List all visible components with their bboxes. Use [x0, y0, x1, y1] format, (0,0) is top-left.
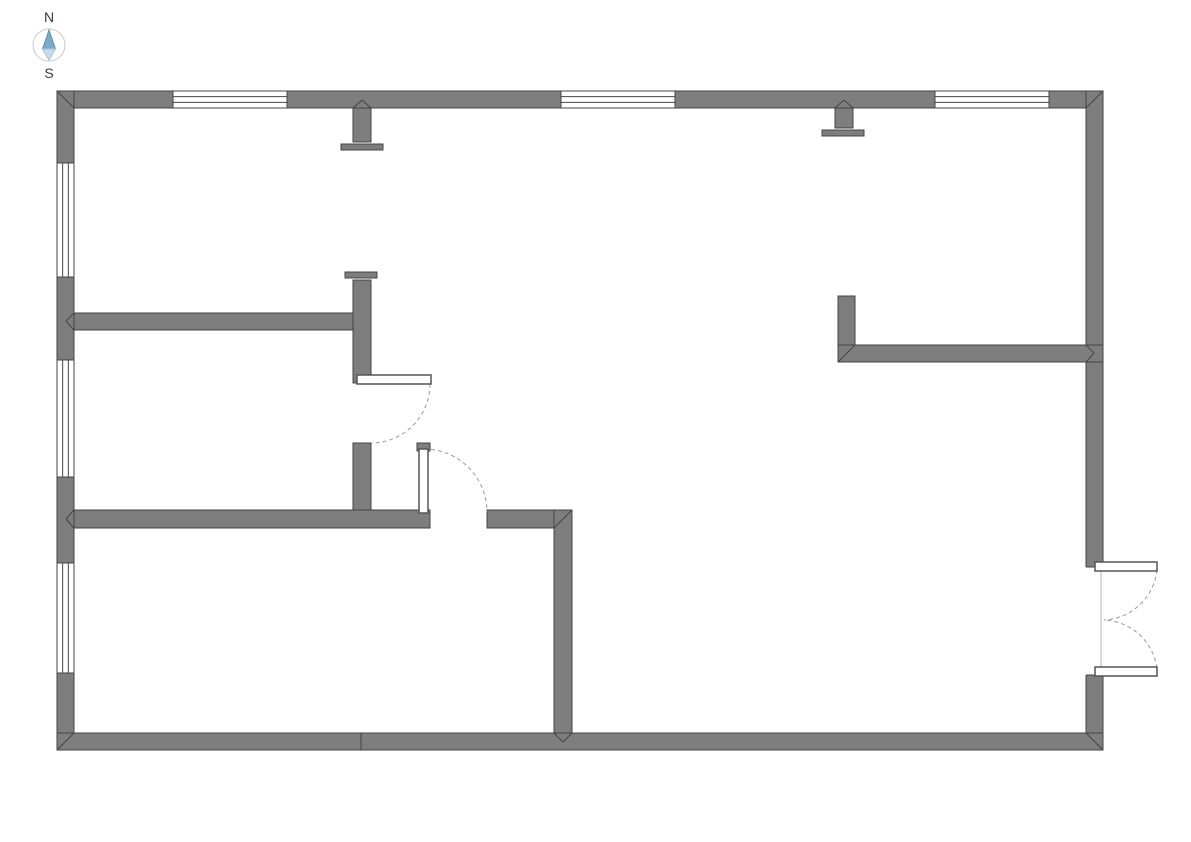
double-door-bottom-swing-arc	[1104, 620, 1157, 668]
top-wall-stub-b	[835, 108, 853, 128]
double-door-top-swing-arc	[1104, 570, 1157, 620]
double-door-opening	[1085, 567, 1104, 675]
top-wall-stub-a	[353, 108, 371, 142]
door-1-leaf	[357, 375, 431, 384]
floorplan-canvas: N S	[0, 0, 1191, 842]
stub-a-endcap	[341, 144, 383, 150]
window-left-1-frame	[57, 163, 74, 277]
window-top-2-frame	[561, 91, 675, 108]
door-2-leaf	[419, 449, 428, 513]
compass: N S	[33, 9, 65, 81]
compass-needle-south-icon	[43, 49, 56, 60]
interior-wall-h2-left	[74, 510, 430, 528]
stub-b-endcap	[822, 130, 864, 136]
interior-wall-h1	[74, 313, 362, 330]
floorplan-drawing: N S	[0, 0, 1191, 842]
window-left-3-frame	[57, 563, 74, 673]
window-top-2	[561, 91, 675, 108]
double-door-bottom-leaf	[1095, 667, 1157, 676]
interior-wall-v1-upper	[353, 280, 371, 383]
compass-south-label: S	[44, 65, 53, 81]
v1-endcap	[345, 272, 377, 278]
window-left-3	[57, 563, 74, 673]
door-1-swing-arc	[371, 384, 430, 443]
compass-north-label: N	[44, 9, 54, 25]
interior-wall-h3	[838, 345, 1103, 362]
window-left-2	[57, 360, 74, 477]
window-top-3	[935, 91, 1049, 108]
interior-wall-v2	[554, 510, 572, 733]
window-top-3-frame	[935, 91, 1049, 108]
bottom-wall	[57, 733, 1103, 750]
window-left-1	[57, 163, 74, 277]
compass-needle-north-icon	[43, 30, 56, 49]
window-top-1-frame	[173, 91, 287, 108]
door-2-swing-arc	[424, 449, 487, 512]
window-left-2-frame	[57, 360, 74, 477]
double-door-top-leaf	[1095, 562, 1157, 571]
window-top-1	[173, 91, 287, 108]
